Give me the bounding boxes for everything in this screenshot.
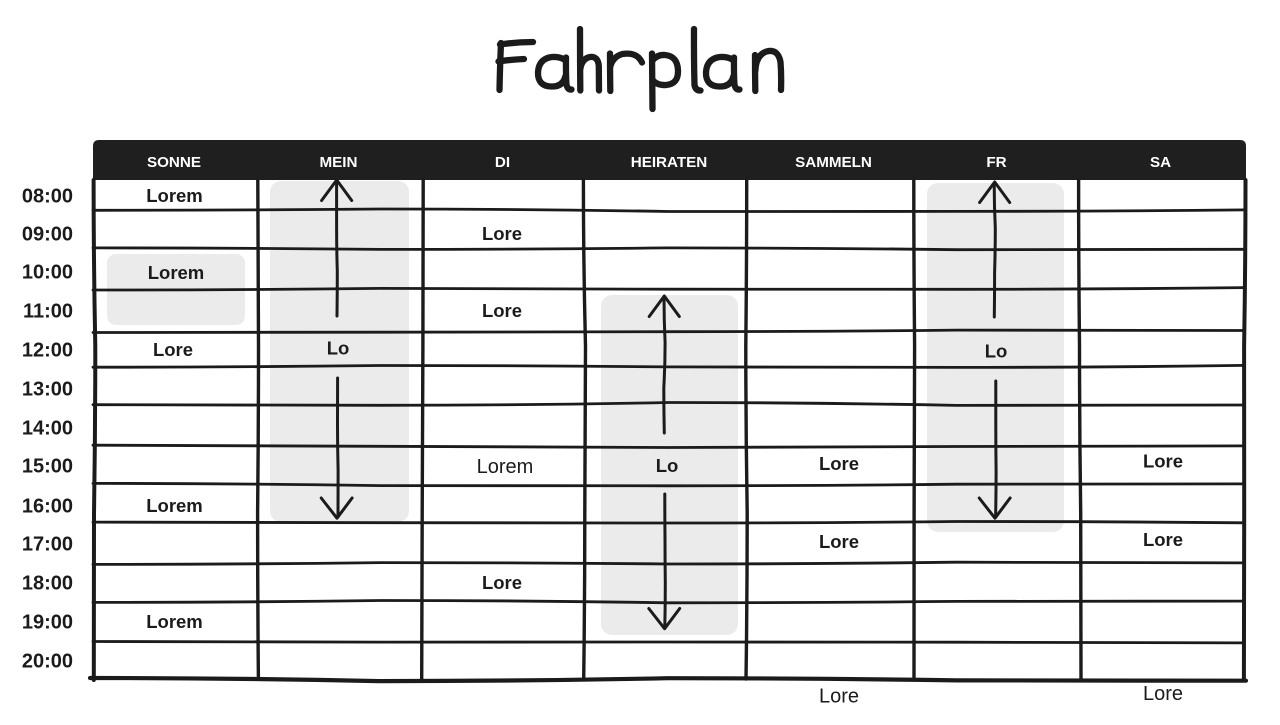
svg-text:10:00: 10:00 [22,262,73,284]
svg-text:Lo: Lo [985,341,1008,362]
svg-text:09:00: 09:00 [22,224,73,246]
svg-text:Lore: Lore [1143,683,1183,705]
svg-text:Lore: Lore [1143,451,1183,472]
svg-text:DI: DI [495,154,510,171]
svg-text:HEIRATEN: HEIRATEN [631,154,708,171]
svg-text:FR: FR [986,154,1006,171]
svg-text:08:00: 08:00 [22,186,73,208]
svg-text:18:00: 18:00 [22,573,73,595]
svg-text:Lore: Lore [482,300,522,321]
svg-text:Lo: Lo [327,338,350,359]
svg-text:Lore: Lore [482,572,522,593]
svg-text:SONNE: SONNE [147,154,201,171]
svg-text:Lorem: Lorem [148,262,205,283]
svg-text:15:00: 15:00 [22,456,73,478]
svg-text:Lore: Lore [819,686,859,708]
svg-text:Lore: Lore [153,339,193,360]
svg-text:Lorem: Lorem [146,495,203,516]
svg-text:14:00: 14:00 [22,418,73,440]
svg-text:Lorem: Lorem [146,611,203,632]
svg-text:SAMMELN: SAMMELN [795,154,872,171]
svg-text:MEIN: MEIN [320,154,358,171]
svg-text:Lo: Lo [656,455,679,476]
svg-text:19:00: 19:00 [22,612,73,634]
svg-text:SA: SA [1150,154,1171,171]
svg-text:Lorem: Lorem [477,456,534,478]
svg-text:Lore: Lore [482,223,522,244]
svg-text:Lore: Lore [1143,529,1183,550]
svg-text:20:00: 20:00 [22,651,73,673]
svg-text:Lore: Lore [819,453,859,474]
svg-text:Lorem: Lorem [146,185,203,206]
svg-text:16:00: 16:00 [22,496,73,518]
svg-text:13:00: 13:00 [22,379,73,401]
svg-text:12:00: 12:00 [22,340,73,362]
svg-text:11:00: 11:00 [23,301,73,323]
svg-text:Lore: Lore [819,531,859,552]
svg-text:17:00: 17:00 [22,534,73,556]
